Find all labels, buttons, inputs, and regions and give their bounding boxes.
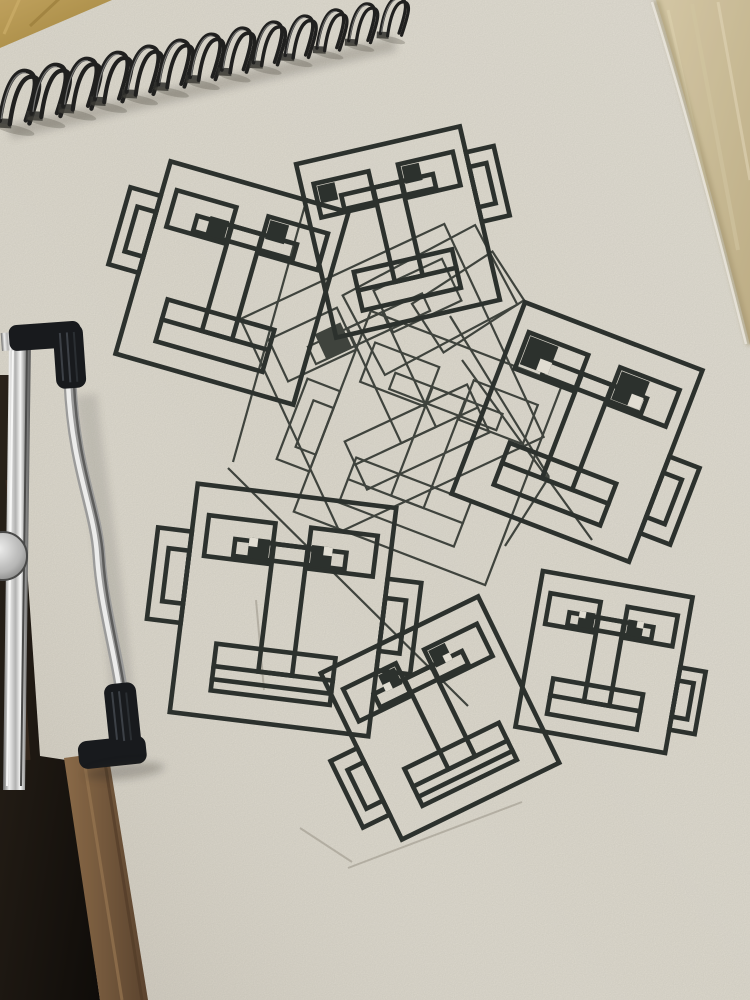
sketchpad-photo bbox=[0, 0, 750, 1000]
scene-svg bbox=[0, 0, 750, 1000]
vignette bbox=[0, 0, 750, 1000]
